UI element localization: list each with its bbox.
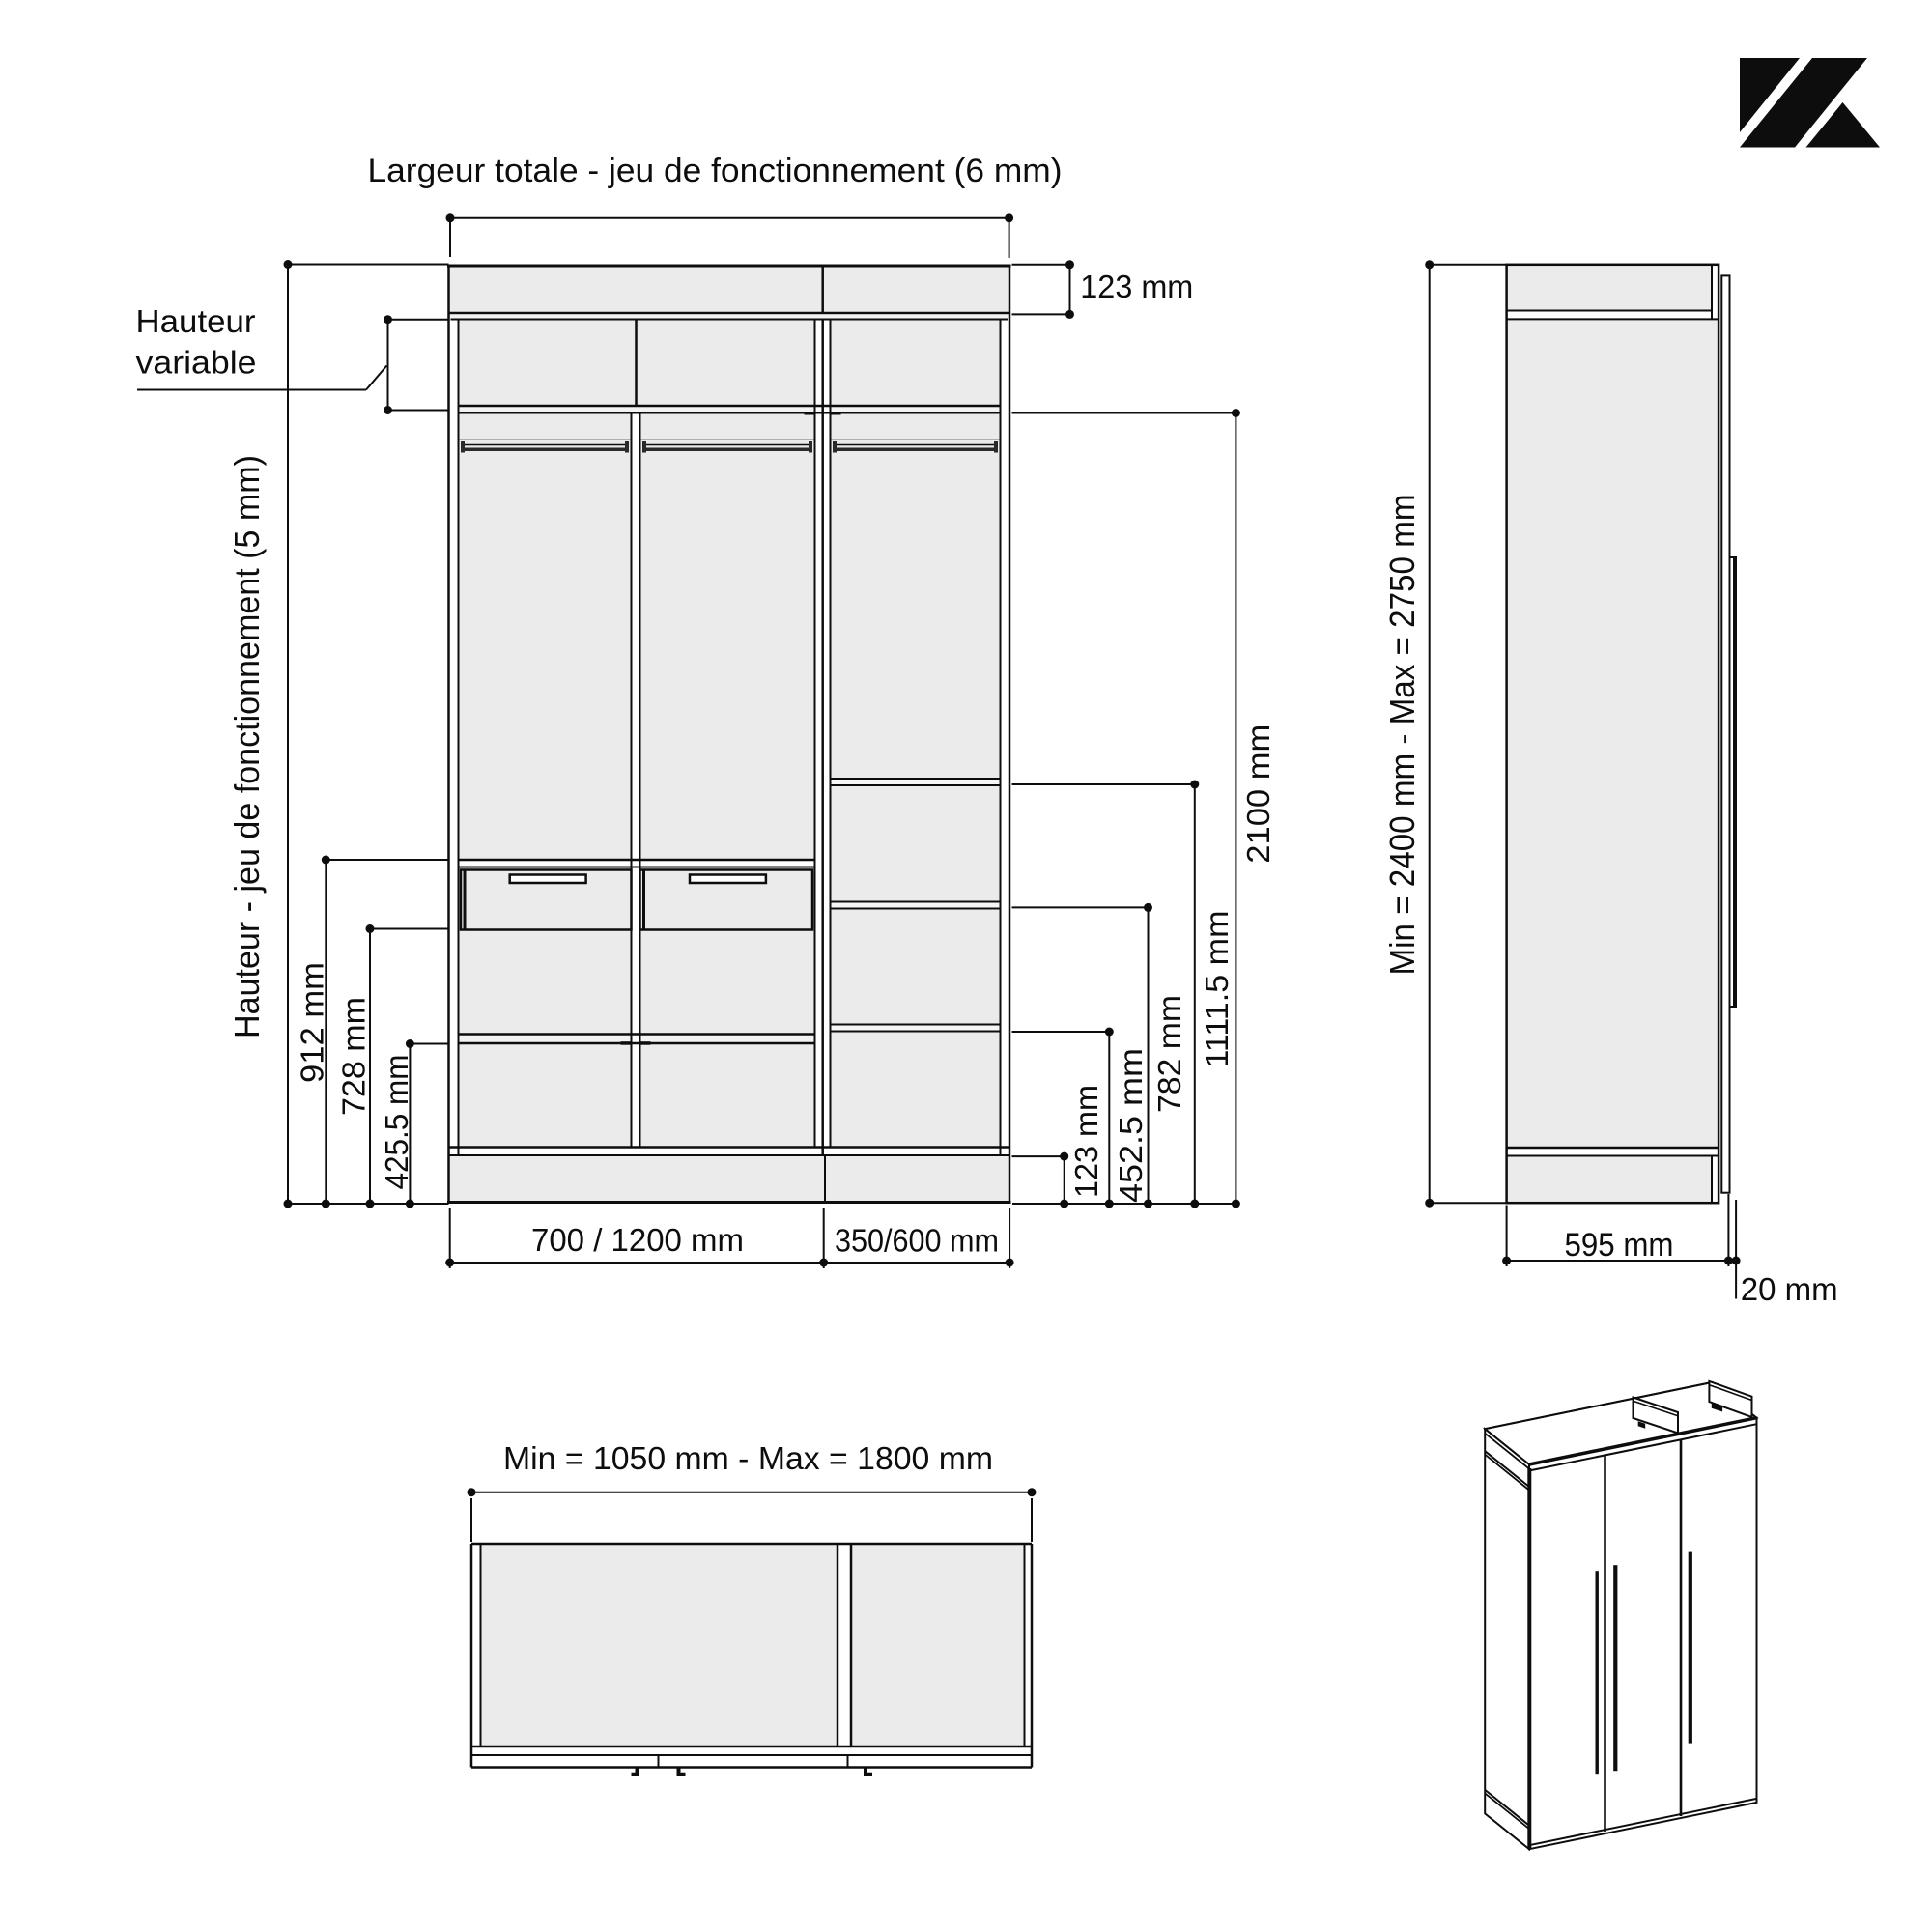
svg-text:912 mm: 912 mm	[295, 962, 330, 1083]
svg-text:Min = 1050 mm - Max = 1800 mm: Min = 1050 mm - Max = 1800 mm	[503, 1440, 993, 1476]
svg-text:Min = 2400 mm - Max = 2750 mm: Min = 2400 mm - Max = 2750 mm	[1382, 495, 1422, 976]
svg-text:728 mm: 728 mm	[336, 997, 372, 1116]
svg-text:350/600 mm: 350/600 mm	[835, 1223, 999, 1259]
svg-text:123 mm: 123 mm	[1068, 1085, 1104, 1198]
svg-text:1111.5 mm: 1111.5 mm	[1199, 911, 1235, 1068]
svg-text:700 / 1200 mm: 700 / 1200 mm	[531, 1222, 744, 1258]
svg-text:Largeur totale - jeu de foncti: Largeur totale - jeu de fonctionnement (…	[368, 153, 1063, 189]
svg-text:Hauteur - jeu de fonctionnemen: Hauteur - jeu de fonctionnement (5 mm)	[227, 455, 267, 1038]
svg-text:variable: variable	[136, 345, 257, 381]
svg-text:595 mm: 595 mm	[1565, 1227, 1674, 1264]
svg-text:452.5 mm: 452.5 mm	[1113, 1048, 1149, 1203]
svg-text:20 mm: 20 mm	[1741, 1271, 1838, 1307]
svg-text:Hauteur: Hauteur	[136, 303, 256, 339]
svg-text:782 mm: 782 mm	[1151, 995, 1187, 1113]
svg-text:2100 mm: 2100 mm	[1240, 724, 1276, 864]
svg-text:425.5 mm: 425.5 mm	[379, 1055, 414, 1190]
svg-text:123 mm: 123 mm	[1080, 269, 1193, 304]
